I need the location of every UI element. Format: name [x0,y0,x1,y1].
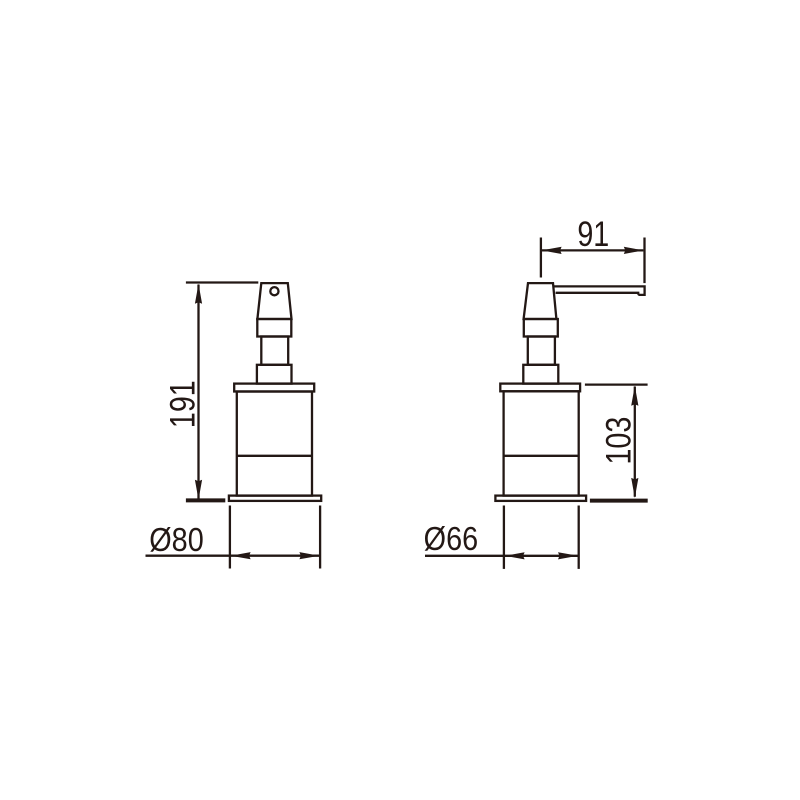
svg-text:191: 191 [163,380,202,428]
svg-text:103: 103 [599,417,638,465]
svg-text:Ø80: Ø80 [149,521,203,559]
svg-text:91: 91 [577,214,609,253]
svg-text:Ø66: Ø66 [424,520,478,558]
